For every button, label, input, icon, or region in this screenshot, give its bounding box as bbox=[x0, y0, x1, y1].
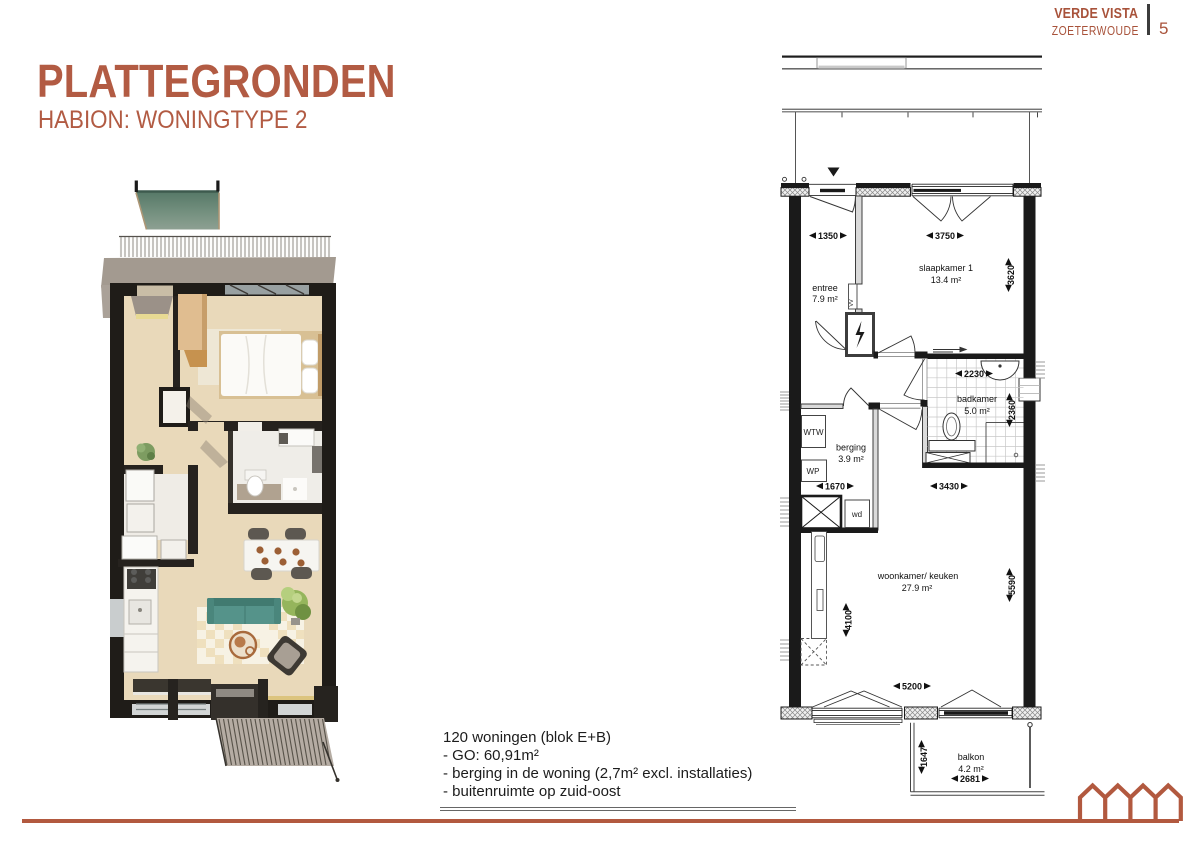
svg-text:2360: 2360 bbox=[1007, 400, 1017, 420]
svg-text:3.9 m²: 3.9 m² bbox=[838, 454, 864, 464]
svg-text:berging: berging bbox=[836, 443, 866, 453]
svg-text:1647: 1647 bbox=[919, 747, 929, 767]
svg-text:3430: 3430 bbox=[939, 482, 959, 492]
svg-text:WP: WP bbox=[807, 467, 820, 476]
svg-text:VV: VV bbox=[849, 299, 855, 307]
svg-text:slaapkamer 1: slaapkamer 1 bbox=[919, 263, 973, 273]
svg-text:badkamer: badkamer bbox=[957, 394, 997, 404]
svg-text:woonkamer/ keuken: woonkamer/ keuken bbox=[877, 571, 959, 581]
svg-text:1670: 1670 bbox=[825, 482, 845, 492]
svg-text:27.9 m²: 27.9 m² bbox=[902, 583, 933, 593]
svg-text:1350: 1350 bbox=[818, 231, 838, 241]
svg-text:2681: 2681 bbox=[960, 774, 980, 784]
svg-text:balkon: balkon bbox=[958, 752, 985, 762]
svg-text:4.2 m²: 4.2 m² bbox=[958, 764, 984, 774]
svg-text:3620: 3620 bbox=[1006, 265, 1016, 285]
svg-text:4100: 4100 bbox=[844, 610, 854, 630]
svg-text:3750: 3750 bbox=[935, 231, 955, 241]
svg-text:entree: entree bbox=[812, 283, 838, 293]
svg-text:5.0 m²: 5.0 m² bbox=[964, 406, 990, 416]
svg-text:5200: 5200 bbox=[902, 682, 922, 692]
svg-text:wd: wd bbox=[851, 510, 862, 519]
svg-text:WTW: WTW bbox=[804, 428, 824, 437]
svg-text:2230: 2230 bbox=[964, 369, 984, 379]
svg-text:13.4 m²: 13.4 m² bbox=[931, 275, 962, 285]
svg-text:7.9 m²: 7.9 m² bbox=[812, 294, 838, 304]
svg-text:5590: 5590 bbox=[1007, 575, 1017, 595]
